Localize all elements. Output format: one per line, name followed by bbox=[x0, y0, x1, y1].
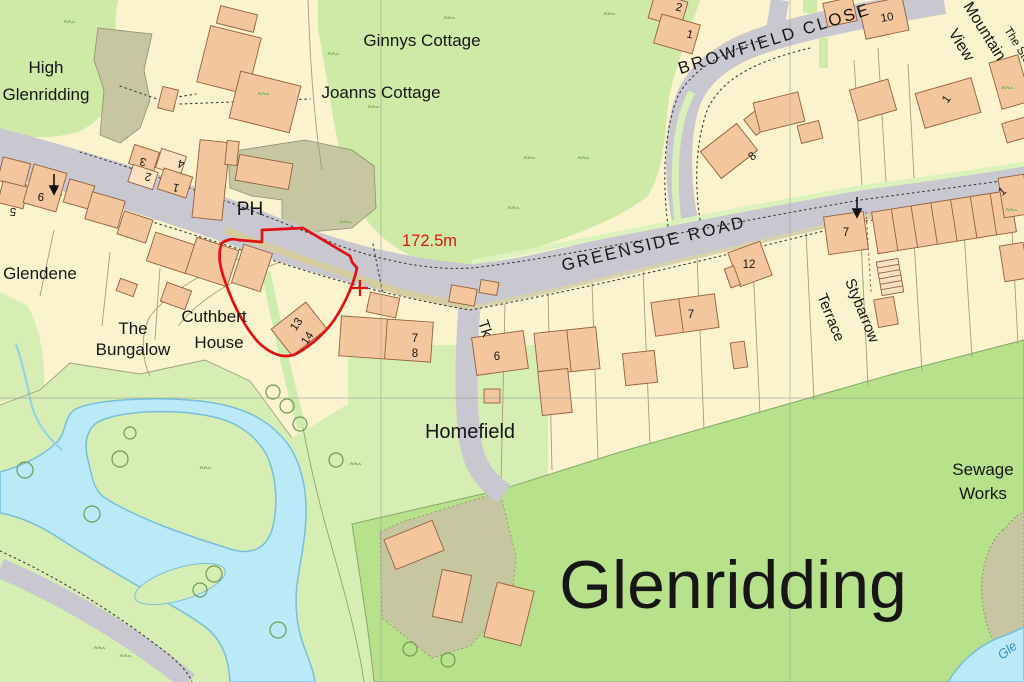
building bbox=[730, 341, 747, 369]
number-7c: 7 bbox=[688, 309, 694, 321]
building-7-8-row bbox=[339, 316, 434, 362]
road-island-green2 bbox=[819, 38, 828, 68]
map-canvas: High Glenridding Ginnys Cottage Joanns C… bbox=[0, 0, 1024, 682]
label-high-glenridding-2: Glenridding bbox=[3, 85, 90, 104]
os-map-extract: High Glenridding Ginnys Cottage Joanns C… bbox=[0, 0, 1024, 682]
label-homefield: Homefield bbox=[425, 421, 515, 443]
building bbox=[534, 327, 600, 375]
number-10: 10 bbox=[880, 11, 895, 25]
label-high-glenridding: High bbox=[29, 58, 64, 77]
building bbox=[484, 389, 500, 403]
road-island-green1 bbox=[803, 0, 817, 13]
label-spot-height: 172.5m bbox=[402, 232, 457, 250]
building bbox=[874, 296, 899, 327]
label-sewage-works: Sewage bbox=[952, 460, 1013, 479]
building bbox=[479, 280, 499, 296]
building bbox=[622, 350, 657, 385]
label-the-bungalow: The bbox=[118, 319, 147, 338]
browfield-stub bbox=[775, 0, 780, 30]
label-ph: PH bbox=[237, 199, 263, 220]
number-8a: 8 bbox=[412, 348, 418, 360]
label-the-bungalow-2: Bungalow bbox=[96, 340, 171, 359]
label-sewage-works-2: Works bbox=[959, 484, 1007, 503]
label-glendene: Glendene bbox=[3, 264, 77, 283]
label-ginnys-cottage: Ginnys Cottage bbox=[363, 31, 480, 50]
label-cuthbert-house: Cuthbert bbox=[181, 307, 246, 326]
label-cuthbert-house-2: House bbox=[194, 333, 243, 352]
building bbox=[225, 140, 239, 165]
number-7a: 7 bbox=[412, 333, 418, 345]
label-glenridding-settlement: Glenridding bbox=[559, 547, 907, 623]
number-12: 12 bbox=[743, 259, 756, 271]
building bbox=[538, 369, 572, 416]
number-7b: 7 bbox=[843, 227, 849, 239]
label-joanns-cottage: Joanns Cottage bbox=[321, 83, 440, 102]
number-6: 6 bbox=[494, 351, 500, 363]
